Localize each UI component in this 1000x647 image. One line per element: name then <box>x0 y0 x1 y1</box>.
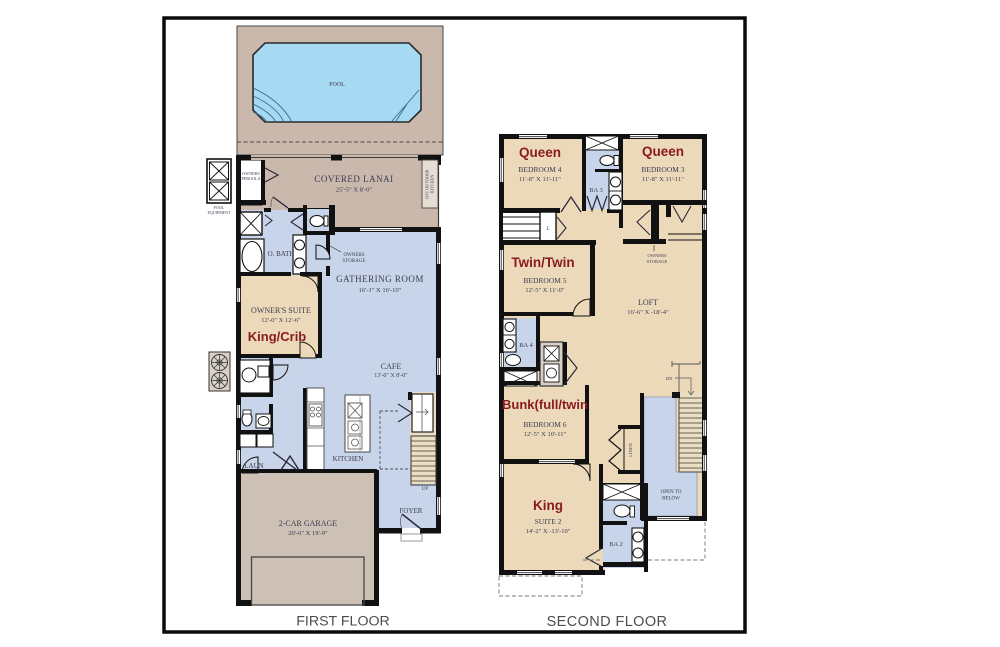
svg-text:BEDROOM 3: BEDROOM 3 <box>641 165 684 174</box>
svg-text:11'-8" X 11'-11": 11'-8" X 11'-11" <box>519 176 561 183</box>
svg-text:LOFT: LOFT <box>638 298 658 307</box>
svg-text:OWNERS: OWNERS <box>343 253 364 258</box>
svg-text:BEDROOM 5: BEDROOM 5 <box>523 276 566 285</box>
svg-text:King/Crib: King/Crib <box>248 329 307 344</box>
svg-text:UP: UP <box>422 487 429 492</box>
svg-text:BEDROOM 4: BEDROOM 4 <box>518 165 561 174</box>
svg-text:LAUN: LAUN <box>244 462 263 470</box>
svg-text:13'-0" X 8'-0": 13'-0" X 8'-0" <box>374 373 408 379</box>
svg-text:25'-5" X 8'-0": 25'-5" X 8'-0" <box>336 187 373 194</box>
svg-text:BA 2: BA 2 <box>609 541 623 548</box>
svg-text:BA 4: BA 4 <box>519 342 533 349</box>
svg-text:16'-6" X -18'-4": 16'-6" X -18'-4" <box>627 309 669 316</box>
svg-text:EQUIPMENT: EQUIPMENT <box>207 210 231 215</box>
svg-text:20'-0" X 19'-9": 20'-0" X 19'-9" <box>288 530 328 537</box>
svg-text:KITCHEN: KITCHEN <box>333 455 364 463</box>
svg-text:BEDROOM 6: BEDROOM 6 <box>523 420 566 429</box>
svg-text:OWNER'S SUITE: OWNER'S SUITE <box>251 306 311 315</box>
svg-text:Queen: Queen <box>519 145 561 160</box>
svg-text:OWNERS: OWNERS <box>648 253 667 258</box>
svg-text:16'-1" X 16'-10": 16'-1" X 16'-10" <box>359 287 402 294</box>
svg-text:GATHERING ROOM: GATHERING ROOM <box>336 274 424 284</box>
svg-text:Twin/Twin: Twin/Twin <box>511 255 574 270</box>
svg-text:11'-8" X 11'-11": 11'-8" X 11'-11" <box>642 176 684 183</box>
svg-text:12'-5" X 10'-11": 12'-5" X 10'-11" <box>524 431 567 438</box>
svg-text:POOL: POOL <box>329 82 345 88</box>
svg-text:Bunk(full/twin: Bunk(full/twin <box>502 397 588 412</box>
svg-text:2-CAR GARAGE: 2-CAR GARAGE <box>279 519 338 528</box>
svg-text:OPEN TO: OPEN TO <box>661 490 682 495</box>
svg-text:PERGOLA: PERGOLA <box>241 176 260 181</box>
svg-text:DN: DN <box>666 376 673 381</box>
svg-text:SUITE 2: SUITE 2 <box>535 517 562 526</box>
svg-text:Queen: Queen <box>642 144 684 159</box>
svg-text:SECOND FLOOR: SECOND FLOOR <box>547 614 668 630</box>
svg-text:FOYER: FOYER <box>400 507 423 515</box>
svg-text:LINEN: LINEN <box>628 443 633 457</box>
svg-text:BELOW: BELOW <box>662 497 680 502</box>
svg-text:STORAGE: STORAGE <box>343 259 366 264</box>
svg-text:CAFE: CAFE <box>381 362 402 371</box>
svg-text:COVERED LANAI: COVERED LANAI <box>314 174 393 184</box>
svg-text:STORAGE: STORAGE <box>647 259 668 264</box>
svg-text:BA 3: BA 3 <box>589 187 603 194</box>
svg-text:12'-0" X 12'-6": 12'-0" X 12'-6" <box>261 317 301 324</box>
svg-text:KITCHEN: KITCHEN <box>430 175 435 193</box>
svg-text:O. BATH: O. BATH <box>268 250 295 258</box>
svg-text:FIRST FLOOR: FIRST FLOOR <box>296 614 390 630</box>
svg-text:14'-2" X -13'-10": 14'-2" X -13'-10" <box>526 528 571 535</box>
svg-text:King: King <box>533 498 563 513</box>
svg-text:12'-5" X 11'-0": 12'-5" X 11'-0" <box>525 287 565 294</box>
